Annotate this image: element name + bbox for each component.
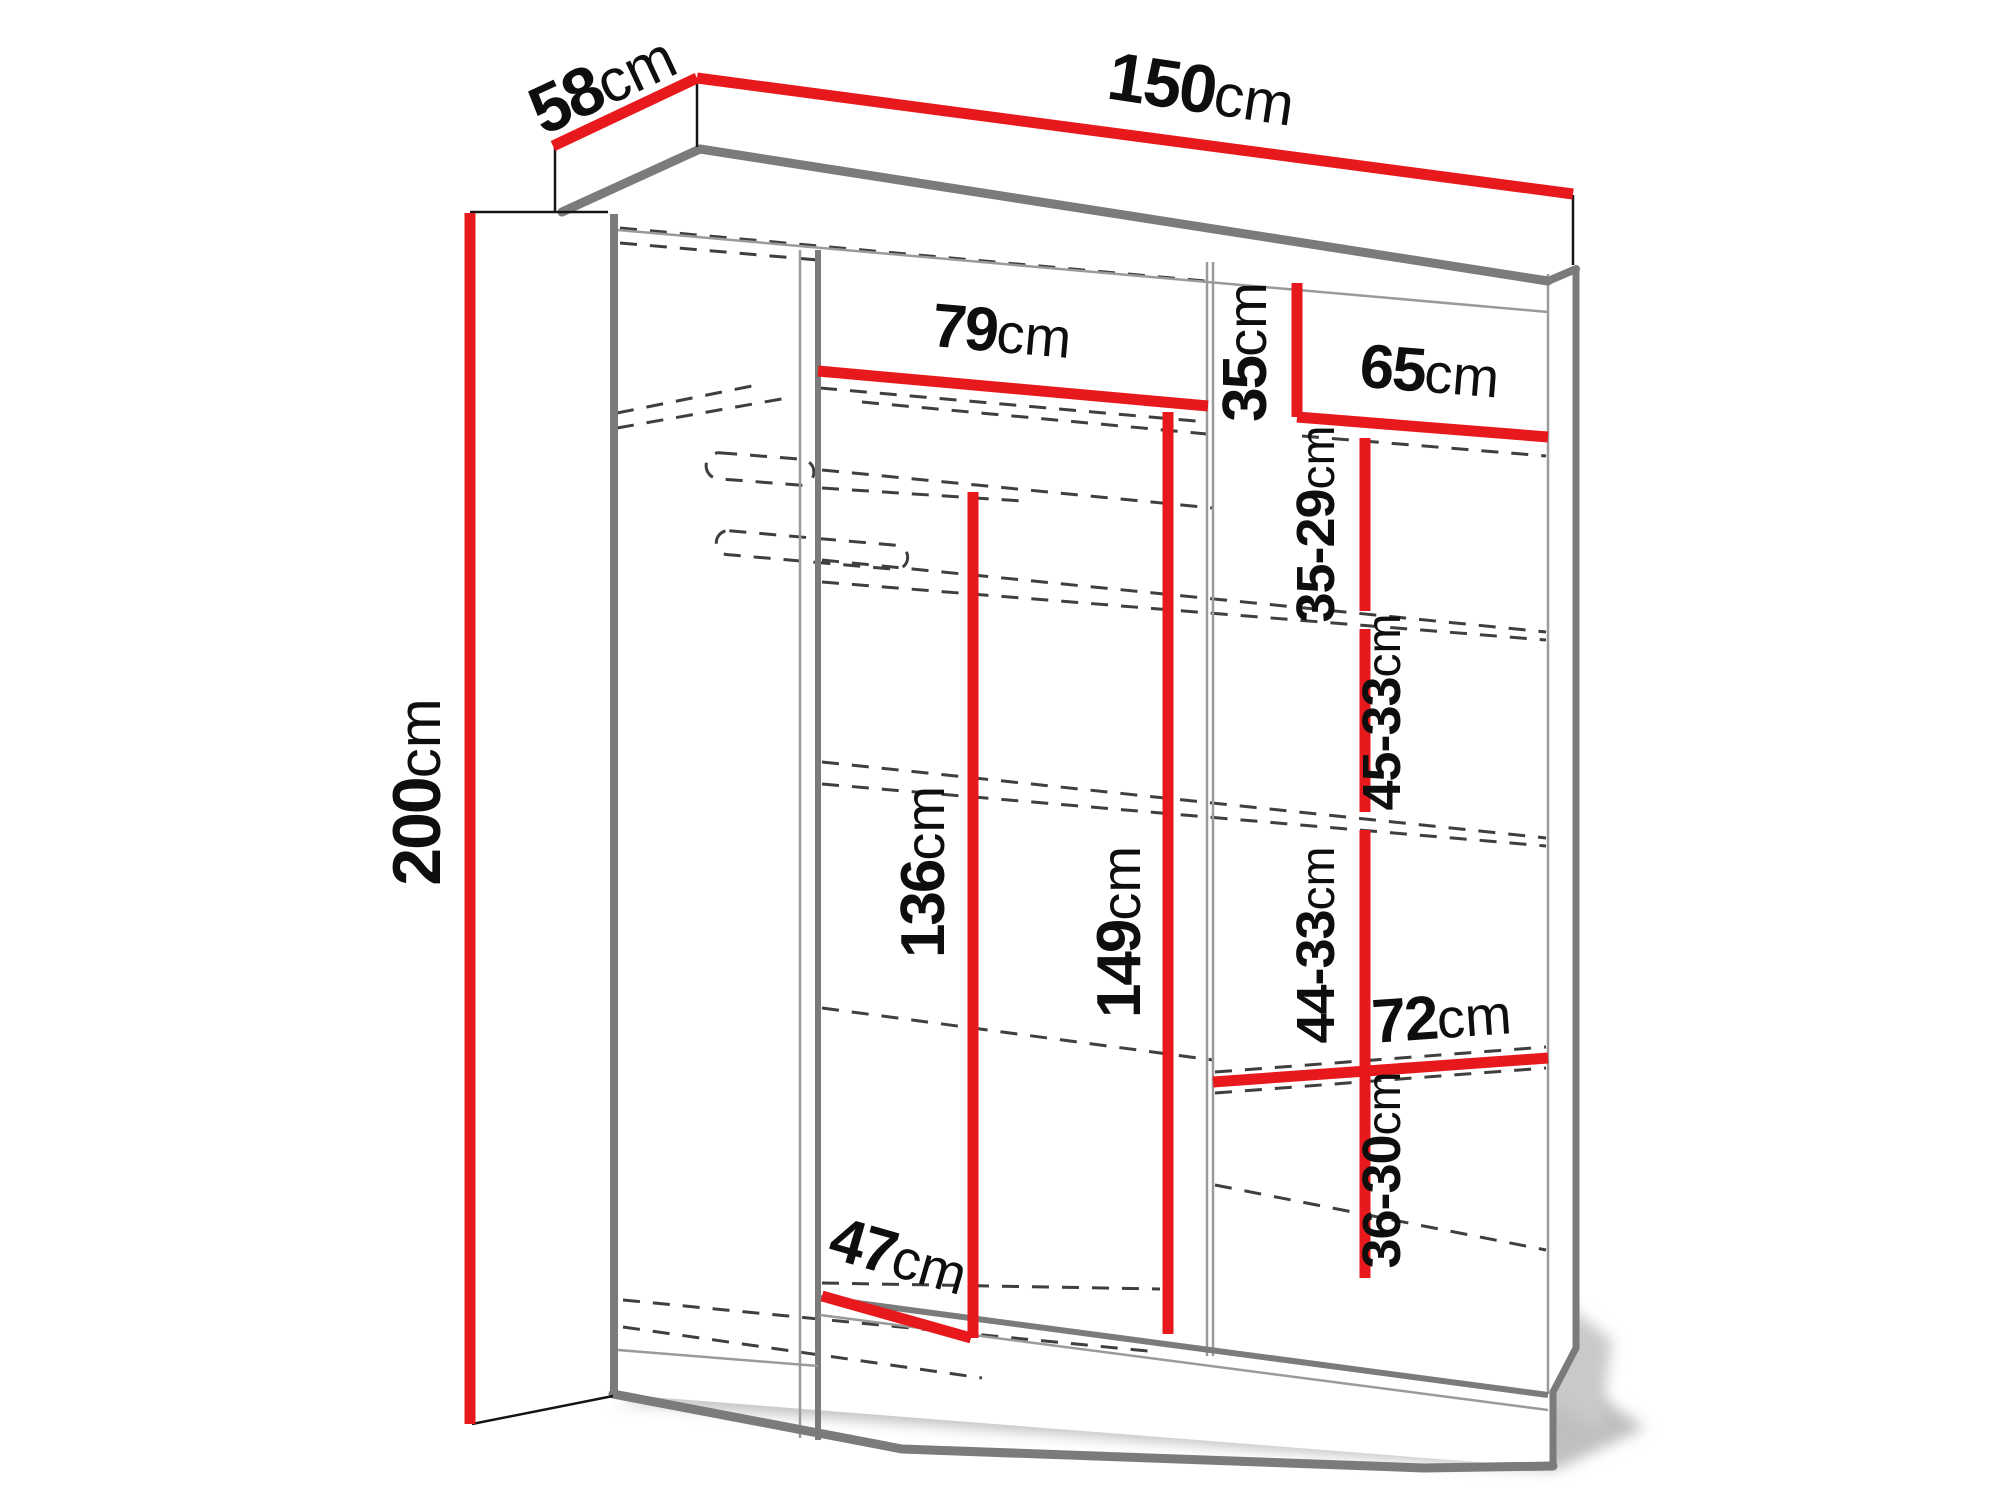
shelf-gap-2-label: 45-33cm — [1352, 613, 1412, 810]
diagram-canvas: 58cm 150cm 200cm 79cm 35cm 65cm 35-29cm … — [0, 0, 2000, 1500]
bottom-right-width-label: 72cm — [1370, 978, 1514, 1057]
shelf-gap-1-label: 35-29cm — [1286, 425, 1346, 622]
shelf-gap-3-label: 44-33cm — [1286, 846, 1346, 1043]
shelf-gap-4-label: 36-30cm — [1352, 1071, 1412, 1268]
top-right-height-label: 35cm — [1211, 282, 1280, 422]
wardrobe-dimension-diagram: 58cm 150cm 200cm 79cm 35cm 65cm 35-29cm … — [0, 0, 2000, 1500]
hanging-height-label: 136cm — [889, 786, 958, 958]
depth-label: 58cm — [518, 17, 688, 150]
width-label: 150cm — [1103, 38, 1300, 141]
interior-height-label: 149cm — [1085, 846, 1154, 1018]
height-label: 200cm — [379, 698, 455, 885]
